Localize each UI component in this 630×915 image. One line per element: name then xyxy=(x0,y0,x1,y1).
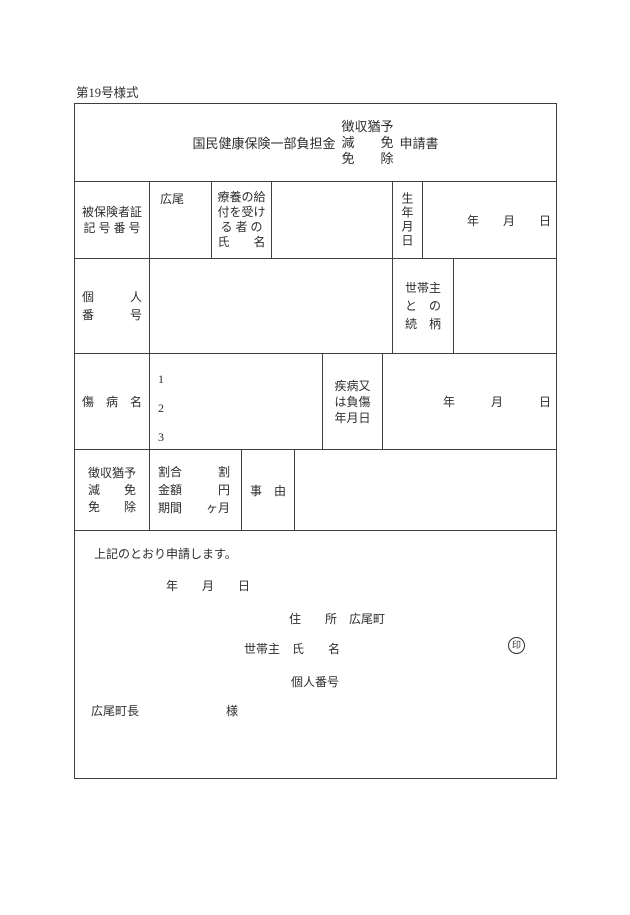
address-label: 住 所 xyxy=(289,610,337,627)
personal-number-value-cell xyxy=(150,259,393,353)
relationship-label-cell: 世帯主 と の 続 柄 xyxy=(393,259,454,353)
address-value: 広尾町 xyxy=(349,610,385,627)
disease-row: 傷 病 名 1 2 3 疾病又 は負傷 年月日 年 月 日 xyxy=(75,354,556,450)
personal-number-line: 個人番号 xyxy=(291,673,339,690)
application-date-line: 年 月 日 xyxy=(166,577,250,594)
title-row: 国民健康保険一部負担金 徴収猶予 減 免 免 除 申請書 xyxy=(75,104,556,182)
deferral-row: 徴収猶予 減 免 免 除 割合 割 金額 円 期間 ヶ月 事 由 xyxy=(75,450,556,531)
mayor-label: 広尾町長 xyxy=(91,702,139,719)
insured-row: 被保険者証 記 号 番 号 広尾 療養の給 付を受け る 者 の 氏 名 生年月… xyxy=(75,182,556,259)
honorific-label: 様 xyxy=(226,702,238,719)
insured-symbol-value-cell: 広尾 xyxy=(150,182,212,258)
birthdate-label: 生年月日 xyxy=(399,182,416,258)
reason-value-cell xyxy=(295,450,556,530)
relationship-value-cell xyxy=(454,259,556,353)
application-form-table: 国民健康保険一部負担金 徴収猶予 減 免 免 除 申請書 被保険者証 記 号 番… xyxy=(74,103,557,779)
seal-character: 印 xyxy=(508,637,525,654)
title-suffix: 申請書 xyxy=(400,133,439,152)
title-deferral-stack: 徴収猶予 減 免 免 除 xyxy=(341,119,393,167)
title-main: 国民健康保険一部負担金 xyxy=(192,133,335,152)
disease-label-cell: 傷 病 名 xyxy=(75,354,150,449)
birthdate-label-cell: 生年月日 xyxy=(393,182,423,258)
personal-number-row: 個 人 番 号 世帯主 と の 続 柄 xyxy=(75,259,556,354)
form-number-label: 第19号様式 xyxy=(76,82,139,101)
declaration-text: 上記のとおり申請します。 xyxy=(94,545,237,562)
deferral-terms-cell: 割合 割 金額 円 期間 ヶ月 xyxy=(150,450,242,530)
householder-name-line: 世帯主 氏 名 xyxy=(244,640,340,657)
address-line: 住 所 広尾町 xyxy=(289,610,385,627)
application-form-page: 第19号様式 国民健康保険一部負担金 徴収猶予 減 免 免 除 申請書 被保険者… xyxy=(0,0,630,915)
onset-value-cell: 年 月 日 xyxy=(383,354,556,449)
recipient-name-label-cell: 療養の給 付を受け る 者 の 氏 名 xyxy=(212,182,272,258)
signature-block: 上記のとおり申請します。 年 月 日 住 所 広尾町 世帯主 氏 名 印 個人番… xyxy=(75,531,556,778)
insured-number-label-cell: 被保険者証 記 号 番 号 xyxy=(75,182,150,258)
personal-number-label-cell: 個 人 番 号 xyxy=(75,259,150,353)
onset-label-cell: 疾病又 は負傷 年月日 xyxy=(323,354,383,449)
recipient-name-value-cell xyxy=(272,182,393,258)
reason-label-cell: 事 由 xyxy=(242,450,295,530)
mayor-line: 広尾町長 様 xyxy=(91,702,238,719)
disease-numbers-cell: 1 2 3 xyxy=(150,354,323,449)
seal-mark-icon: 印 xyxy=(508,637,525,654)
birthdate-value-cell: 年 月 日 xyxy=(423,182,556,258)
deferral-label-cell: 徴収猶予 減 免 免 除 xyxy=(75,450,150,530)
